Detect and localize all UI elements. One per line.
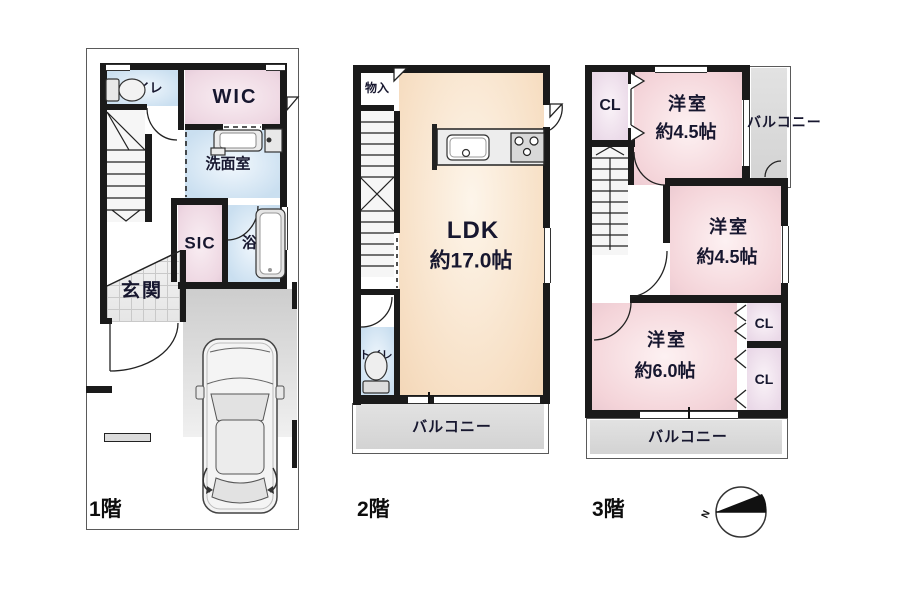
gate-bar-1f [104,433,151,442]
wall [292,420,297,468]
label-entrance-1f: 玄関 [121,282,163,301]
wall [543,283,550,404]
label-room3-size-3f: 約6.0帖 [634,362,695,380]
wall [145,134,152,222]
wall [185,124,223,130]
wall [628,147,634,185]
window [655,66,707,73]
label-closet-low-3f: CL [755,372,774,386]
label-closet-mid-3f: CL [755,316,774,330]
wall [178,63,184,110]
room3-3f [592,303,737,410]
window [782,226,789,283]
window [281,207,288,250]
compass-north-label: N [700,509,713,520]
label-bath-1f: 浴室 [242,236,272,251]
label-room2-size-3f: 約4.5帖 [696,248,757,266]
label-room2-name-3f: 洋室 [709,218,749,236]
wall [663,185,670,243]
label-ldk-size-2f: 約17.0帖 [430,251,513,272]
wall [100,63,107,323]
window [266,64,285,71]
window [640,411,738,419]
window [408,396,428,404]
label-ldk-name-2f: LDK [447,219,499,243]
label-storage-2f: 物入 [365,82,389,94]
label-room3-name-3f: 洋室 [647,331,687,349]
label-balcony-2f: バルコニー [412,420,492,435]
label-toilet-2f: トイレ [360,351,393,362]
wall [394,111,400,233]
window [544,228,551,283]
wall [86,386,112,393]
wall [628,128,635,147]
wall [262,124,287,130]
wall [747,341,781,348]
wall [292,282,297,309]
window [434,396,540,404]
wall [543,127,550,228]
floor-label-2f: 2階 [357,493,390,523]
stairs-1f [107,110,145,222]
wall [742,65,750,100]
wall [178,282,287,289]
label-room1-name-3f: 洋室 [668,95,708,113]
label-room1-size-3f: 約4.5帖 [655,123,716,141]
wall [585,65,592,418]
wall [592,140,628,147]
compass-icon: N [700,487,767,537]
driveway-1f [183,289,297,437]
label-wic-1f: WIC [213,87,258,107]
wall [280,63,287,289]
floor-label-1f: 1階 [89,493,122,523]
wall [353,65,550,73]
window [106,64,130,71]
label-sic-1f: SIC [184,235,215,252]
wall [222,198,228,282]
wall [781,283,788,418]
label-washroom-1f: 洗面室 [205,157,250,172]
label-toilet-1f: トイレ [123,82,162,95]
wall [171,198,228,205]
wall [630,295,781,303]
label-closet-top-3f: CL [599,98,620,114]
wall [178,104,184,130]
room-toilet-2f [360,327,394,397]
wall [100,104,147,110]
wall [171,198,177,282]
room2-3f [670,185,781,297]
wall [394,289,400,397]
wall [360,105,394,111]
wall [665,178,742,186]
stairs-3f [592,147,628,255]
wall [628,72,635,84]
wall [100,318,112,324]
stairs-2f [360,111,394,277]
floor-label-3f: 3階 [592,493,625,523]
label-balcony-side-3f: バルコニー [747,115,822,129]
window [743,100,750,166]
wall [505,157,544,165]
wall [180,250,186,322]
label-balcony-bottom-3f: バルコニー [648,430,728,445]
floorplan-canvas: トイレ WIC 洗面室 SIC 浴室 玄関 1階 物入 LDK 約17.0帖 ト… [0,0,900,600]
wall [543,65,550,105]
wall [781,178,788,226]
